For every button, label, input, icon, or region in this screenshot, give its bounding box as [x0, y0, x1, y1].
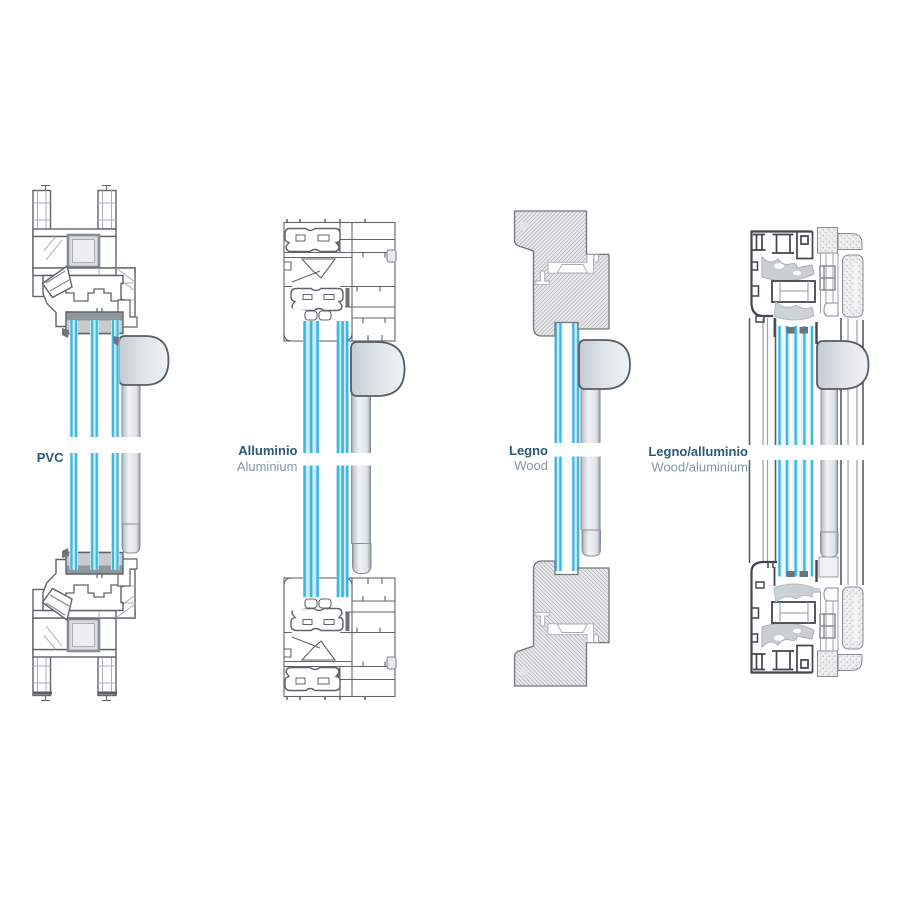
svg-text:Wood/aluminium: Wood/aluminium	[651, 460, 748, 475]
svg-text:Legno: Legno	[509, 443, 548, 458]
svg-text:PVC: PVC	[37, 450, 64, 465]
svg-text:Legno/alluminio: Legno/alluminio	[648, 444, 748, 459]
svg-text:Alluminio: Alluminio	[238, 443, 297, 458]
svg-text:Wood: Wood	[514, 458, 548, 473]
svg-text:Aluminium: Aluminium	[237, 459, 298, 474]
